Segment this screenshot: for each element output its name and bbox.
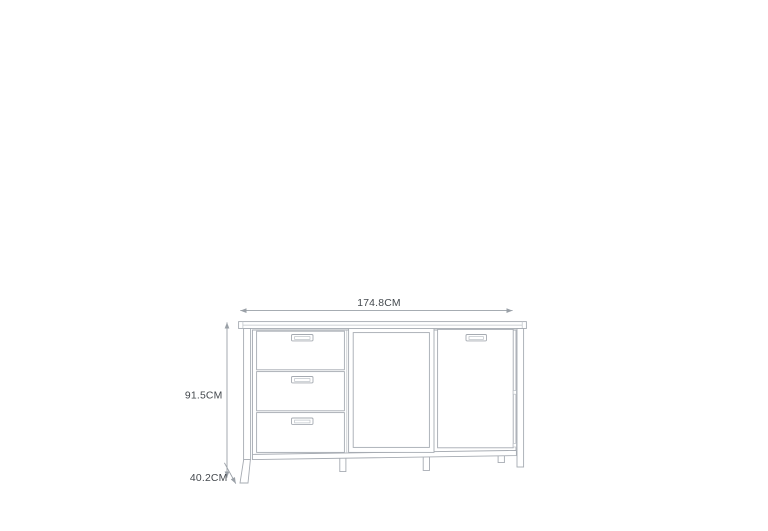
width-dimension: 174.8CM <box>240 298 512 311</box>
middle-foot-left <box>340 458 346 472</box>
slatted-sliding-door <box>349 328 434 453</box>
depth-dimension: 40.2CM <box>190 463 236 484</box>
product-dimension-diagram: 174.8CM 91.5CM 40.2CM <box>0 0 768 531</box>
height-dimension-label: 91.5CM <box>185 390 223 401</box>
drawer-2-handle <box>292 377 314 383</box>
width-dimension-label: 174.8CM <box>357 298 401 309</box>
depth-dimension-label: 40.2CM <box>190 473 228 484</box>
front-left-foot <box>240 460 250 484</box>
slat-door-frame <box>349 328 434 453</box>
right-door-front <box>438 329 514 447</box>
right-door-handle <box>466 335 487 341</box>
height-dimension: 91.5CM <box>185 322 227 477</box>
drawer-column <box>257 331 347 453</box>
drawer-1-handle <box>292 335 314 341</box>
middle-foot-right <box>423 457 429 471</box>
front-right-leg <box>517 329 524 468</box>
right-door <box>438 329 517 447</box>
sideboard-drawing <box>239 322 527 483</box>
hinge-mark-bottom <box>513 443 516 447</box>
hinge-mark-top <box>513 391 516 395</box>
sideboard-dimension-drawing: 174.8CM 91.5CM 40.2CM <box>0 0 768 531</box>
top-board <box>239 322 527 329</box>
front-left-leg <box>244 329 251 460</box>
drawer-3-handle <box>292 418 314 424</box>
